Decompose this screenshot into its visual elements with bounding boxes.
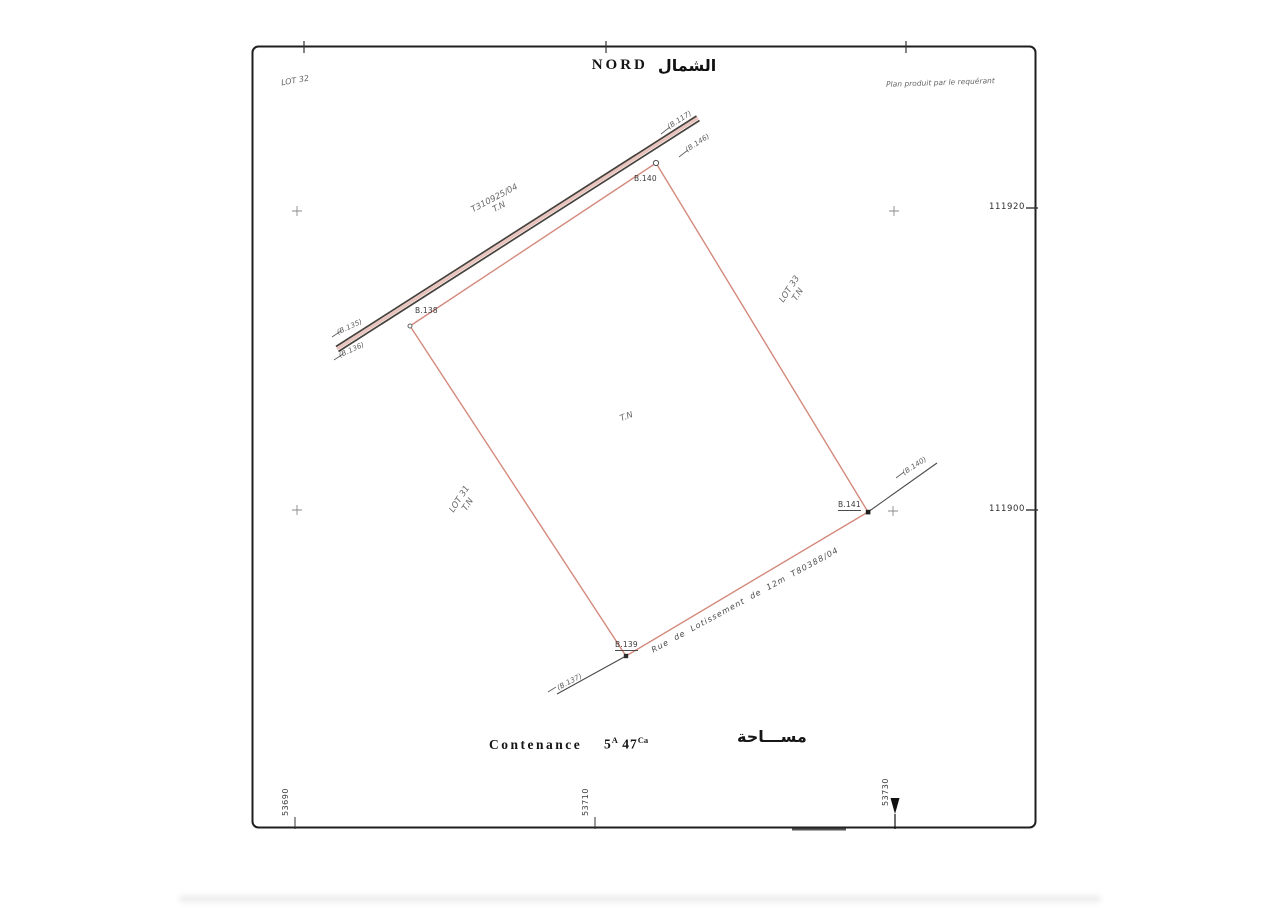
sheet-border [253,47,1036,828]
north-title: NORD الشمال [584,56,724,75]
vertex-markers [408,160,870,658]
parcel-boundary [410,163,868,656]
vertex-marker-b141 [866,510,871,515]
cadastral-plan-sheet: LOT 32 NORD الشمال Plan produit par le r… [0,0,1280,908]
contenance-value: 5A 47Ca [604,735,648,753]
grid-y-label-111920: 111920 [981,202,1025,212]
grid-x-label-53710: 53710 [581,788,591,816]
plan-linework [0,0,1280,908]
contenance-ares: 5 [604,737,612,752]
grid-crosses [292,206,899,516]
north-title-ar: الشمال [658,56,716,75]
axis-arrow [891,798,900,829]
vertex-label-b139: B.139 [615,640,638,651]
reference-arrows [332,127,904,692]
grid-x-label-53730: 53730 [881,778,891,806]
north-title-fr: NORD [592,57,648,74]
vertex-label-b138: B.138 [415,306,438,315]
vertex-marker-b139 [624,654,628,658]
contenance-centiares-unit: Ca [638,735,648,745]
contenance-ares-unit: A [612,735,618,745]
vertex-label-b140: B.140 [634,174,657,183]
contenance-label-ar: مســـاحة [737,727,807,746]
scan-artifact [180,896,1100,902]
contenance-centiares: 47 [622,737,638,752]
vertex-label-b141: B.141 [838,500,861,511]
contenance-label: Contenance [489,737,582,753]
grid-y-label-111900: 111900 [981,504,1025,514]
extension-lines [557,463,937,694]
grid-x-label-53690: 53690 [281,788,291,816]
vertex-marker-b138 [408,324,412,328]
vertex-marker-b140 [653,160,658,165]
road-boundary-underlay [337,118,698,349]
